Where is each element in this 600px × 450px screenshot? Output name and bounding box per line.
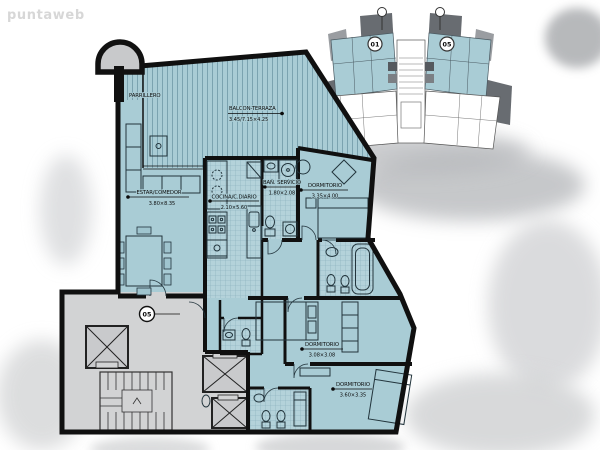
room-name: PARRILLERO (129, 93, 161, 99)
key-plan-unit-right-badge: 05 (443, 41, 452, 49)
key-plan-unit-left-badge: 01 (371, 41, 380, 49)
room-dims: 3.45/7.15×4.25 (229, 117, 268, 123)
room-dims: 3.60×3.35 (340, 393, 366, 399)
room-name: BALCON-TERRAZA (229, 106, 276, 112)
stairs (100, 372, 172, 430)
room-name: BAÑ. SERVICIO (263, 179, 301, 186)
watermark: puntaweb (7, 8, 85, 23)
floor-plan-page: puntaweb 01 05 (0, 0, 600, 450)
unit-badge-number: 05 (143, 311, 152, 319)
room-name: DORMITORIO (308, 183, 342, 189)
parrillero-chimney (114, 66, 124, 102)
third-bath-floor (249, 389, 309, 431)
room-name: DORMITORIO (305, 342, 339, 348)
room-dims: 3.08×3.08 (309, 353, 335, 359)
kitchen-floor (206, 159, 261, 298)
elevator-middle-top (203, 353, 247, 392)
room-dims: 1.80×2.08 (269, 191, 295, 197)
room-label-parrillero: PARRILLERO (129, 93, 161, 99)
room-name: COCINA/C.DIARIO (211, 195, 256, 201)
floor-plan-canvas: puntaweb 01 05 (0, 0, 600, 450)
small-bath-floor (221, 319, 261, 353)
room-name: DORMITORIO (336, 382, 370, 388)
key-plan-tower-right (424, 8, 512, 150)
room-dims: 2.10×5.60 (221, 205, 247, 211)
elevator-middle-bottom (212, 395, 247, 428)
room-name: ESTAR/COMEDOR (136, 190, 181, 196)
elevator-left (86, 326, 128, 368)
room-dims: 3.35×4.00 (312, 194, 338, 200)
room-dims: 3.80×8.35 (149, 201, 175, 207)
